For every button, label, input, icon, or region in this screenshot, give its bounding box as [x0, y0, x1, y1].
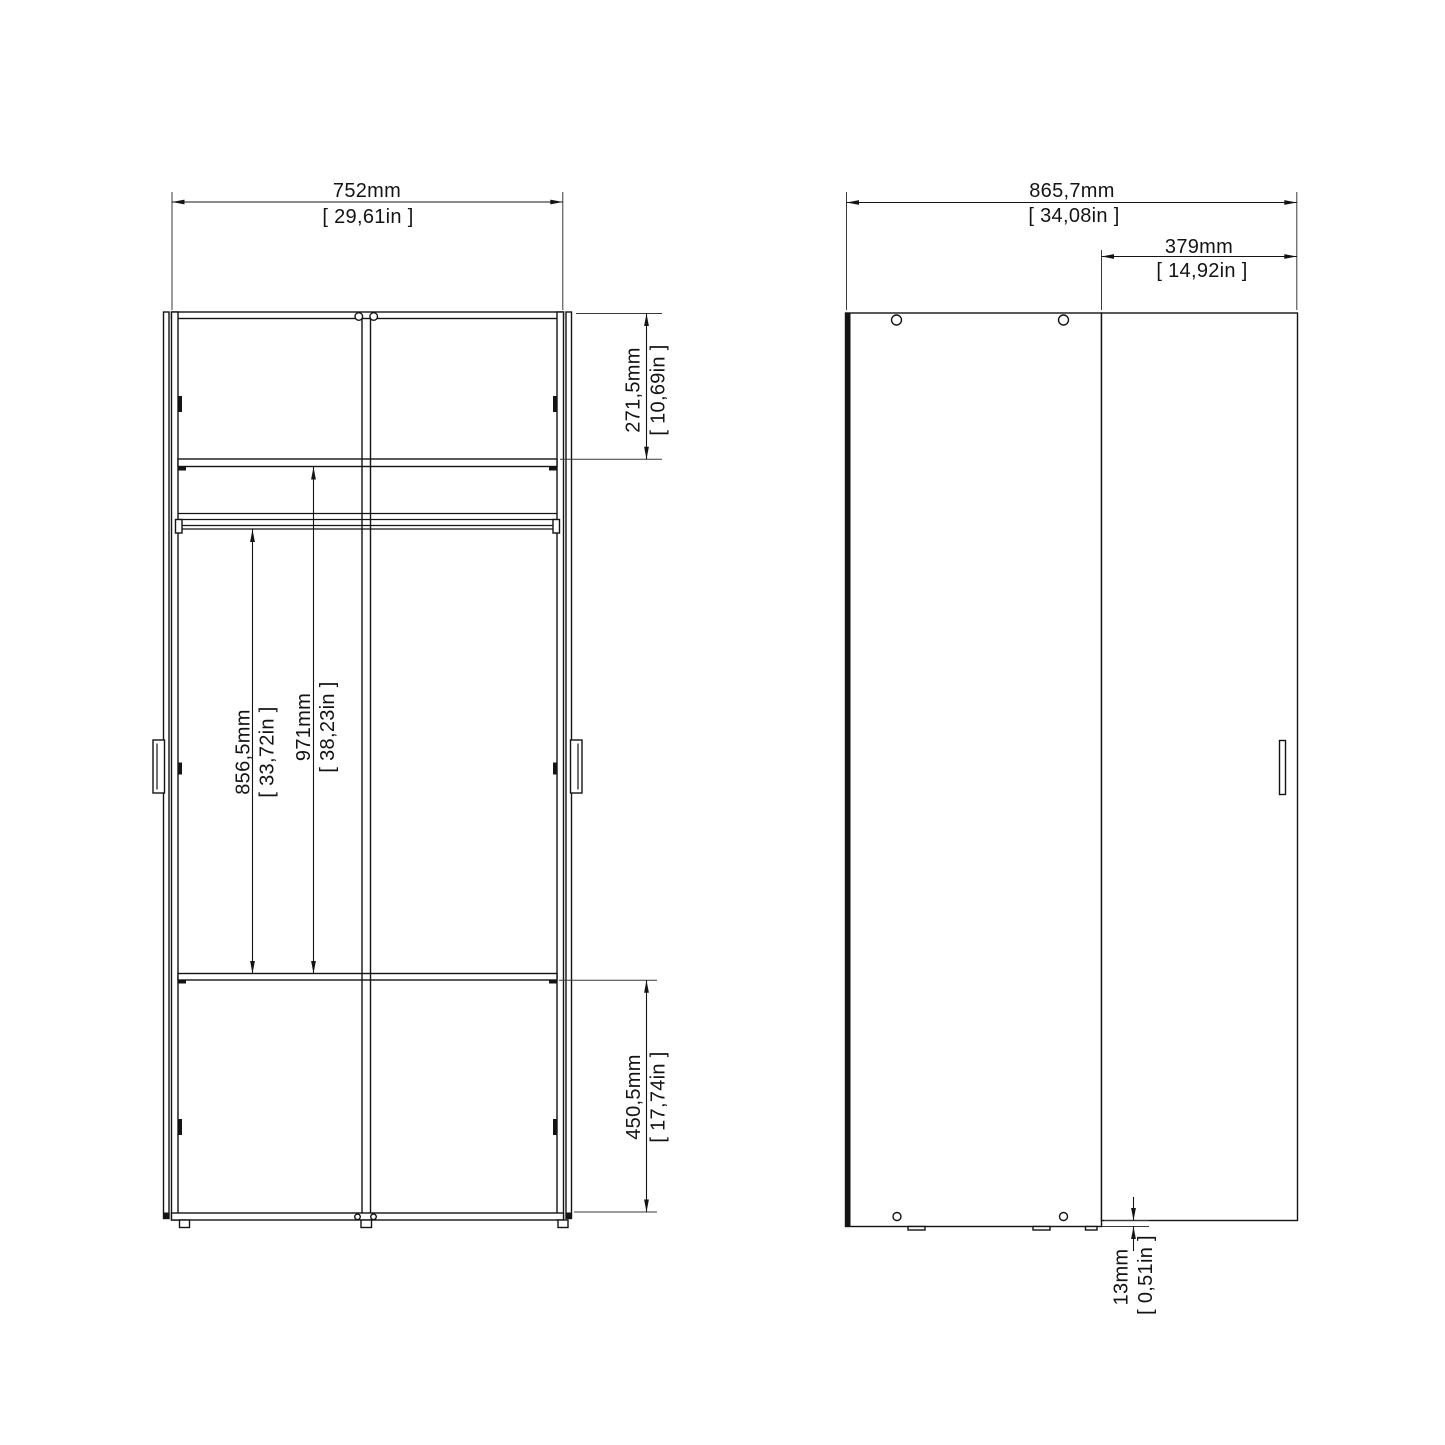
dim-total-depth-in: [ 34,08in ] [1028, 205, 1119, 227]
dimension-bottom-section: 450,5mm [ 17,74in ] [559, 980, 670, 1212]
dim-rail-height-in: [ 33,72in ] [257, 706, 279, 797]
side-open-door [1102, 313, 1298, 1221]
side-back-panel-edge [846, 313, 851, 1227]
right-door-handle [571, 740, 583, 793]
rail-bracket-right [553, 520, 560, 534]
dimension-front-width: 752mm [ 29,61in ] [172, 180, 563, 310]
dim-door-thickness-in: [ 0,51in ] [1135, 1235, 1157, 1315]
dimension-interior-height: 971mm [ 38,23in ] [293, 467, 339, 974]
side-cabinet-outline [846, 313, 1102, 1227]
left-door-handle [153, 740, 165, 793]
top-shelf [178, 459, 557, 471]
left-door-bottom-guide [163, 1213, 170, 1219]
dimension-top-section: 271,5mm [ 10,69in ] [560, 314, 670, 460]
rail-bracket-left [176, 520, 183, 534]
front-feet [180, 1220, 569, 1228]
side-view: 865,7mm [ 34,08in ] 379mm [ 14,92in ] 13… [846, 180, 1298, 1315]
dimension-rail-height: 856,5mm [ 33,72in ] [233, 530, 279, 974]
dim-bottom-section-in: [ 17,74in ] [648, 1051, 670, 1142]
dim-front-width-mm: 752mm [333, 180, 401, 202]
front-left-side-panel [172, 312, 179, 1220]
hanging-rail [176, 514, 560, 534]
front-bottom-panel [172, 1213, 564, 1220]
dim-rail-height-mm: 856,5mm [233, 709, 255, 794]
dimension-door-width: 379mm [ 14,92in ] [1102, 236, 1297, 310]
center-divider [362, 317, 371, 1213]
bottom-shelf [178, 974, 557, 984]
right-door-bottom-guide [566, 1213, 573, 1219]
dim-door-width-in: [ 14,92in ] [1156, 260, 1247, 282]
dim-top-section-mm: 271,5mm [623, 347, 645, 432]
front-right-side-panel [557, 312, 564, 1220]
dim-interior-height-in: [ 38,23in ] [317, 681, 339, 772]
front-top-panel [172, 312, 564, 319]
technical-drawing-page: 752mm [ 29,61in ] 271,5mm [ 10,69in ] 85… [0, 0, 1445, 1445]
dim-front-width-in: [ 29,61in ] [322, 206, 413, 228]
dim-interior-height-mm: 971mm [293, 693, 315, 761]
front-view: 752mm [ 29,61in ] 271,5mm [ 10,69in ] 85… [153, 180, 670, 1228]
dim-total-depth-mm: 865,7mm [1029, 180, 1114, 202]
dim-door-thickness-mm: 13mm [1111, 1249, 1133, 1306]
door-pivots [355, 313, 378, 1220]
dim-top-section-in: [ 10,69in ] [648, 344, 670, 435]
dim-bottom-section-mm: 450,5mm [623, 1054, 645, 1139]
wardrobe-dimension-drawing: 752mm [ 29,61in ] 271,5mm [ 10,69in ] 85… [0, 0, 1445, 1445]
dim-door-width-mm: 379mm [1165, 236, 1233, 258]
